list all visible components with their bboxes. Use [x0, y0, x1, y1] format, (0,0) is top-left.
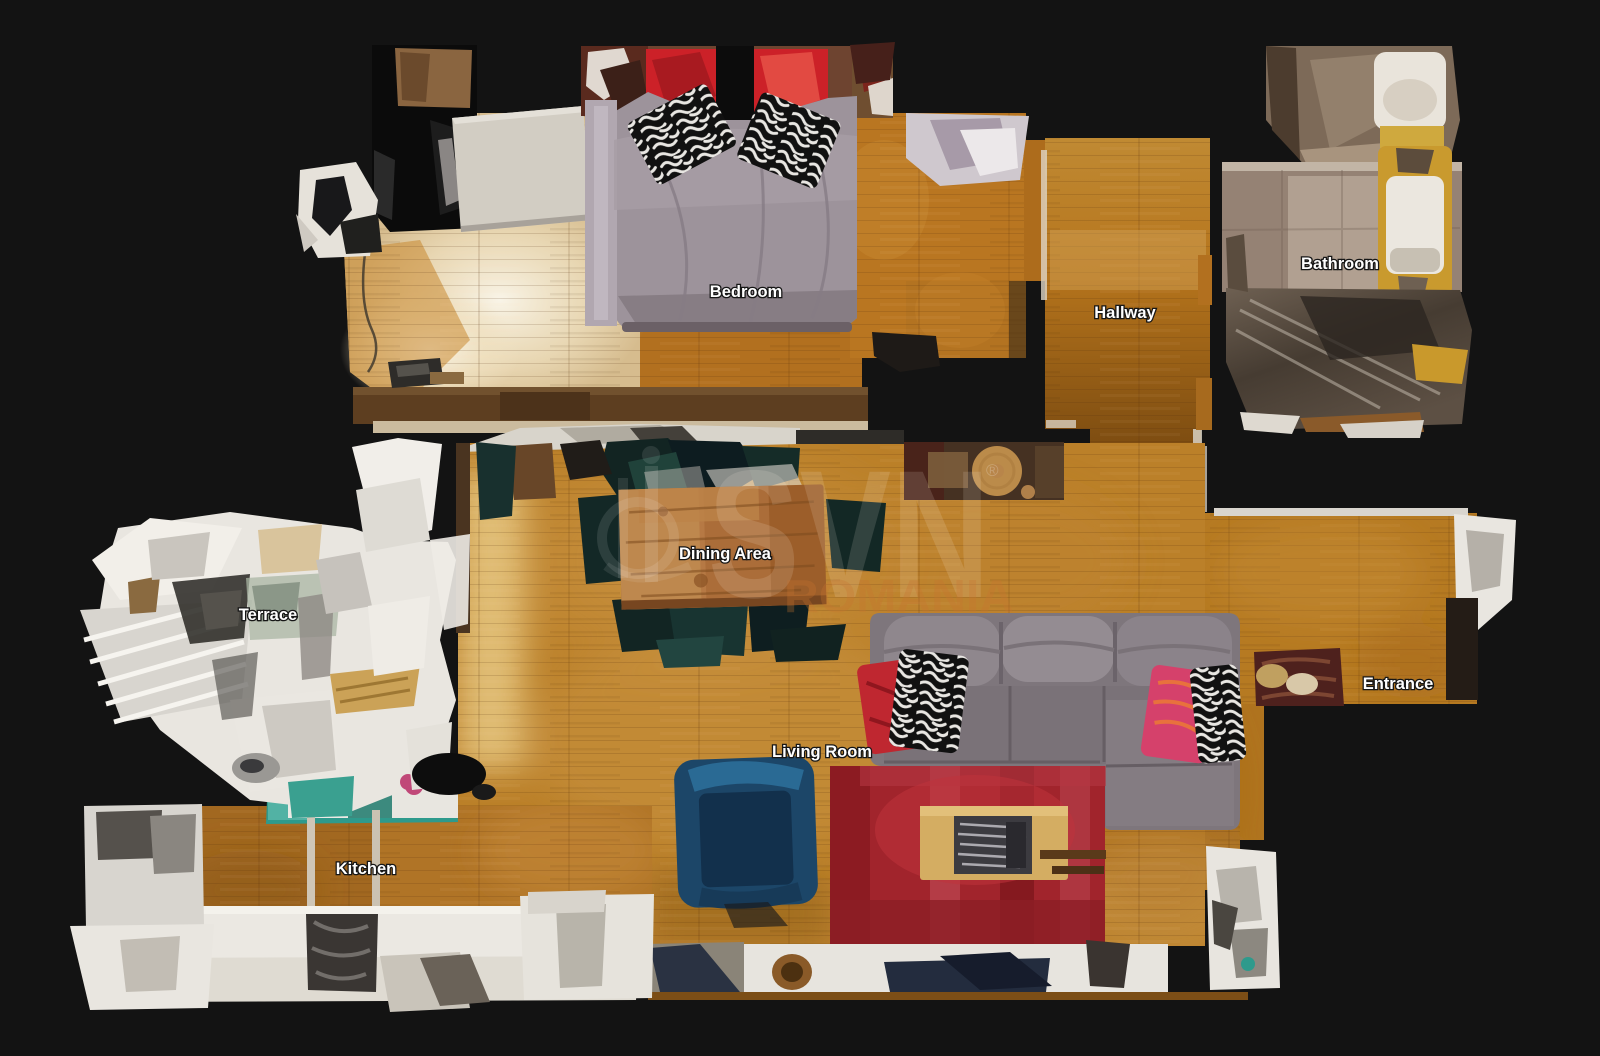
svg-text:Kitchen: Kitchen — [336, 860, 397, 878]
svg-text:ROMANIA: ROMANIA — [784, 570, 1014, 622]
svg-text:®: ® — [986, 461, 999, 480]
svg-text:Bedroom: Bedroom — [710, 283, 782, 301]
svg-text:Hallway: Hallway — [1094, 304, 1156, 322]
svg-text:Entrance: Entrance — [1363, 675, 1434, 693]
svg-text:Dining Area: Dining Area — [679, 545, 772, 563]
svg-text:Terrace: Terrace — [239, 606, 297, 624]
svg-text:Living Room: Living Room — [772, 743, 872, 761]
svg-text:Bathroom: Bathroom — [1301, 255, 1379, 273]
